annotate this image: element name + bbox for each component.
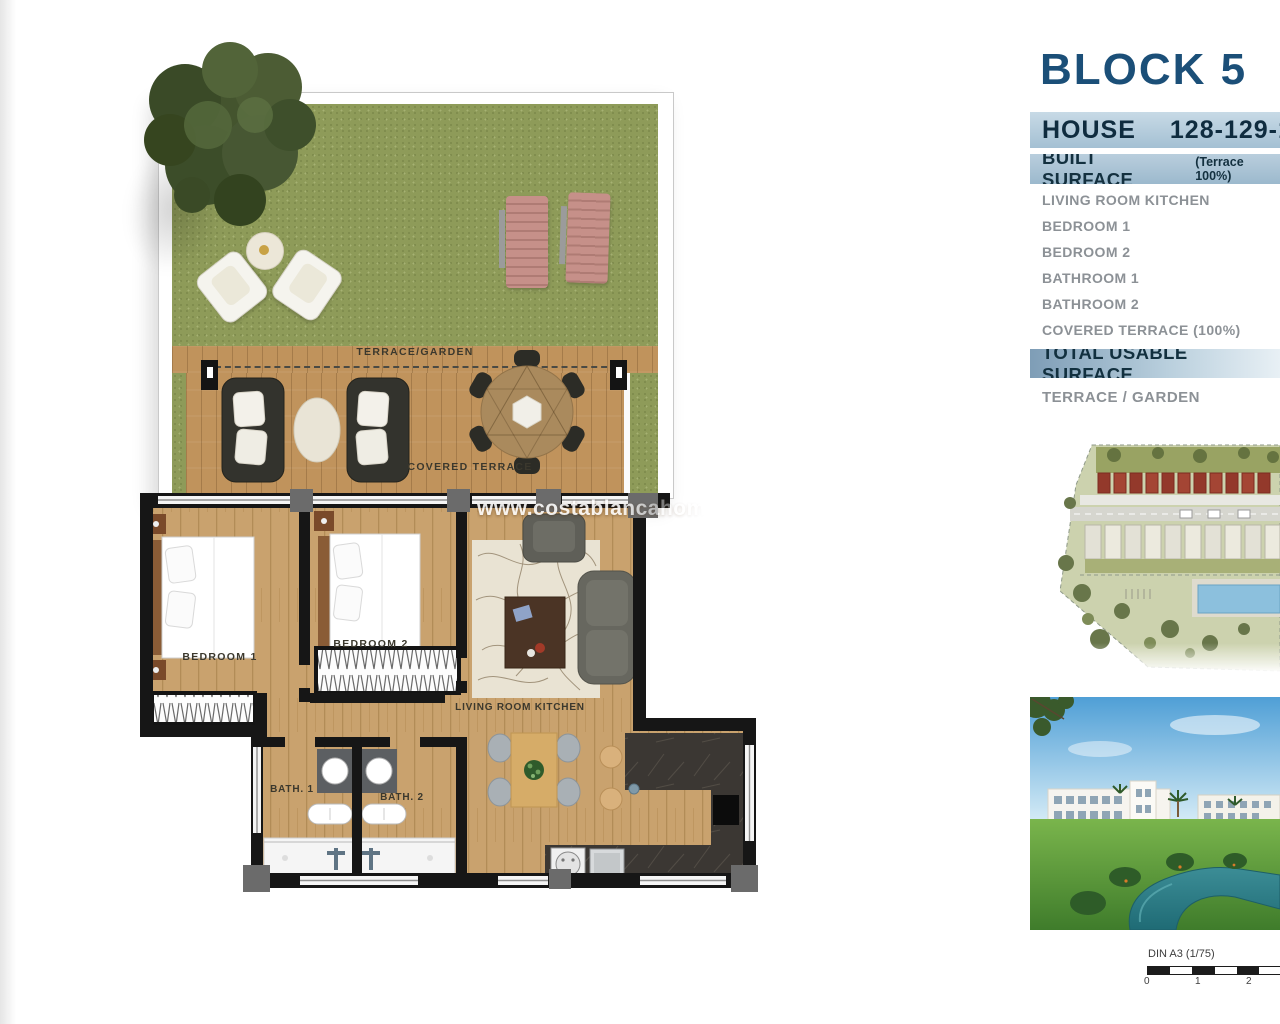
label-bedroom-2: BEDROOM 2 bbox=[312, 638, 430, 650]
wardrobe-bedroom1 bbox=[152, 693, 255, 724]
scale-tick-2: 2 bbox=[1246, 976, 1252, 987]
room-row-bathroom1: BATHROOM 1 bbox=[1042, 270, 1280, 296]
built-surface-note: (Terrace 100%) bbox=[1195, 155, 1280, 183]
total-usable-surface-label: TOTAL USABLE SURFACE bbox=[1042, 349, 1280, 378]
room-row-bathroom2: BATHROOM 2 bbox=[1042, 296, 1280, 322]
plan-sheet: TERRACE/GARDEN COVERED TERRACE BEDROOM 1… bbox=[0, 0, 1280, 1024]
site-plan-thumbnail bbox=[1030, 443, 1280, 673]
label-living-room-kitchen: LIVING ROOM KITCHEN bbox=[452, 702, 588, 713]
scale-bar-title: DIN A3 (1/75) bbox=[1148, 948, 1215, 960]
building-render-photo bbox=[1030, 697, 1280, 930]
scale-tick-1: 1 bbox=[1195, 976, 1201, 987]
label-bath-1: BATH. 1 bbox=[262, 784, 322, 795]
room-row-bedroom1: BEDROOM 1 bbox=[1042, 218, 1280, 244]
label-terrace-garden: TERRACE/GARDEN bbox=[330, 346, 500, 358]
label-covered-terrace: COVERED TERRACE bbox=[390, 461, 550, 473]
block-title: BLOCK 5 bbox=[1040, 45, 1247, 95]
scale-bar bbox=[1147, 966, 1280, 975]
house-number-bar: HOUSE 128-129-13 bbox=[1030, 112, 1280, 148]
room-row-bedroom2: BEDROOM 2 bbox=[1042, 244, 1280, 270]
house-numbers: 128-129-13 bbox=[1170, 116, 1280, 145]
room-row-living: LIVING ROOM KITCHEN bbox=[1042, 192, 1280, 218]
label-bath-2: BATH. 2 bbox=[372, 792, 432, 803]
terrace-garden-row: TERRACE / GARDEN bbox=[1042, 389, 1200, 406]
wardrobe-bedroom2 bbox=[316, 648, 459, 693]
room-row-covered-terrace: COVERED TERRACE (100%) bbox=[1042, 322, 1280, 348]
built-surface-bar: BUILT SURFACE (Terrace 100%) bbox=[1030, 154, 1280, 184]
label-bedroom-1: BEDROOM 1 bbox=[160, 651, 280, 663]
house-label: HOUSE bbox=[1042, 116, 1136, 145]
scale-tick-0: 0 bbox=[1144, 976, 1150, 987]
watermark: www.costablancahom bbox=[477, 497, 706, 521]
total-usable-surface-bar: TOTAL USABLE SURFACE bbox=[1030, 349, 1280, 378]
built-surface-label: BUILT SURFACE bbox=[1042, 154, 1188, 184]
